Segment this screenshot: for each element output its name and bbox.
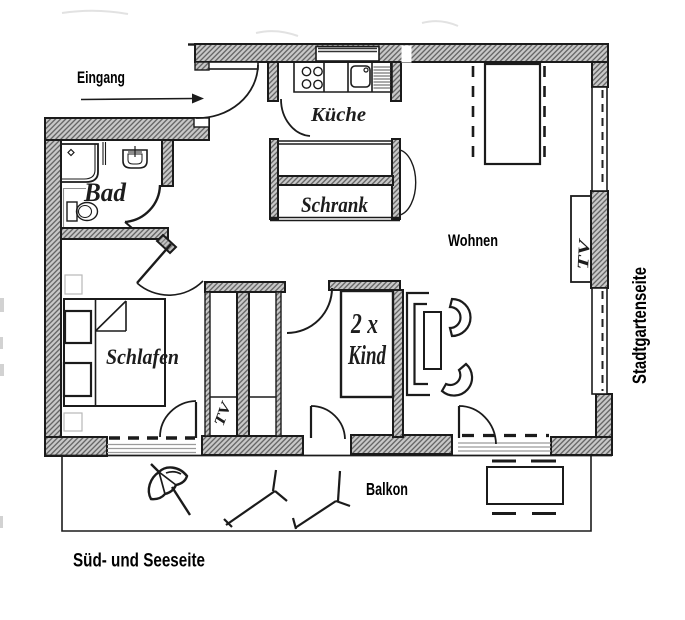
svg-text:TV: TV — [575, 237, 594, 270]
svg-text:Stadtgartenseite: Stadtgartenseite — [629, 267, 651, 384]
svg-text:Küche: Küche — [310, 104, 366, 126]
svg-text:Schlafen: Schlafen — [106, 344, 179, 369]
svg-text:Kind: Kind — [347, 340, 386, 370]
svg-text:2 x: 2 x — [350, 309, 378, 340]
svg-text:Balkon: Balkon — [366, 479, 408, 499]
svg-text:Bad: Bad — [83, 178, 127, 207]
svg-text:Schrank: Schrank — [301, 192, 368, 217]
svg-text:Eingang: Eingang — [77, 68, 125, 87]
svg-text:Süd- und Seeseite: Süd- und Seeseite — [73, 551, 205, 572]
svg-text:Wohnen: Wohnen — [448, 231, 498, 250]
